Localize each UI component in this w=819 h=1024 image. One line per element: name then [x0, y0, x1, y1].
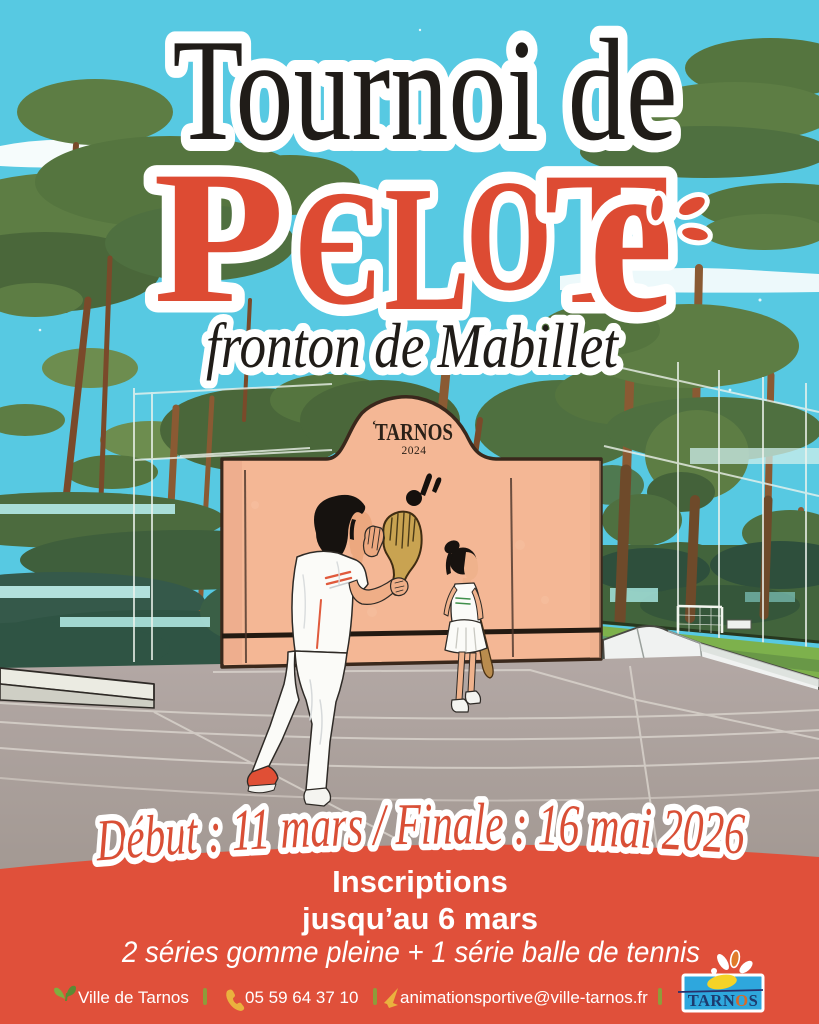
svg-text:Inscriptions: Inscriptions — [332, 864, 508, 899]
svg-text:TARNOS: TARNOS — [688, 991, 759, 1010]
svg-text:2 séries gomme pleine + 1 séri: 2 séries gomme pleine + 1 série balle de… — [121, 936, 700, 969]
svg-text:animationsportive@ville-tarnos: animationsportive@ville-tarnos.fr — [400, 988, 648, 1007]
svg-text:fronton de Mabillet: fronton de Mabillet — [206, 311, 619, 381]
svg-text:2024: 2024 — [402, 445, 427, 457]
svg-text:‘: ‘ — [372, 417, 376, 432]
svg-text:05 59 64 37 10: 05 59 64 37 10 — [245, 988, 358, 1007]
svg-text:TARNOS: TARNOS — [375, 420, 453, 446]
svg-text:jusqu’au 6 mars: jusqu’au 6 mars — [301, 901, 538, 936]
svg-text:Ville de Tarnos: Ville de Tarnos — [78, 988, 189, 1007]
svg-text:O: O — [466, 146, 552, 324]
